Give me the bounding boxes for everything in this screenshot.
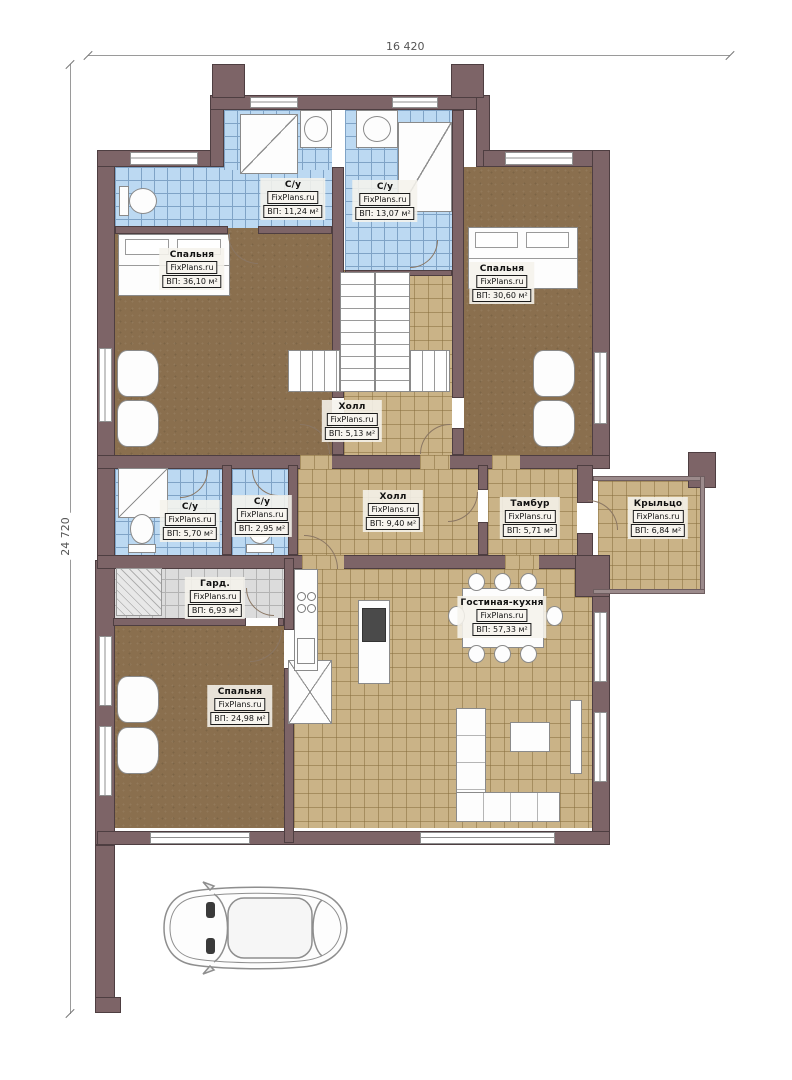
wall-segment	[478, 522, 488, 555]
room-label-porch: Крыльцо FixPlans.ru ВП: 6,84 м²	[628, 497, 688, 539]
window	[99, 348, 112, 422]
watermark: FixPlans.ru	[214, 698, 265, 711]
dining-chair-icon	[494, 645, 511, 663]
room-area: ВП: 36,10 м²	[162, 275, 221, 288]
wall-segment	[278, 618, 284, 626]
dimension-label-left: 24 720	[59, 513, 72, 560]
watermark: FixPlans.ru	[359, 193, 410, 206]
room-label-bath-mid-left: С/у FixPlans.ru ВП: 5,70 м²	[160, 500, 220, 542]
watermark: FixPlans.ru	[189, 590, 240, 603]
window	[250, 97, 298, 108]
toilet-tank	[119, 186, 129, 216]
dining-chair-icon	[520, 573, 537, 591]
cooktop-icon	[362, 608, 386, 642]
living-kitchen-floor	[294, 569, 592, 828]
shower-icon	[240, 114, 298, 174]
window	[420, 832, 555, 844]
sink-icon	[304, 116, 328, 142]
room-name: Крыльцо	[634, 499, 682, 509]
floor-plan: 16 420 24 720	[0, 0, 792, 1080]
door-opening	[492, 455, 520, 469]
room-name: Гард.	[200, 579, 230, 589]
dimension-label-top: 16 420	[382, 40, 429, 53]
chimney-block	[212, 64, 245, 98]
wall-segment	[95, 845, 115, 1013]
watermark: FixPlans.ru	[504, 510, 555, 523]
room-area: ВП: 6,84 м²	[631, 524, 685, 537]
dimension-line-top	[88, 55, 730, 56]
room-name: С/у	[254, 497, 270, 507]
porch-wall	[593, 476, 705, 481]
tv-unit-icon	[570, 700, 582, 774]
wall-segment	[97, 455, 610, 469]
room-label-bath-mid-right: С/у FixPlans.ru ВП: 2,95 м²	[232, 495, 292, 537]
wall-segment	[115, 226, 228, 234]
wall-segment	[113, 618, 246, 626]
room-area: ВП: 30,60 м²	[472, 289, 531, 302]
dining-chair-icon	[520, 645, 537, 663]
window	[392, 97, 438, 108]
watermark: FixPlans.ru	[476, 275, 527, 288]
room-name: С/у	[285, 180, 301, 190]
room-label-bath-top-center: С/у FixPlans.ru ВП: 13,07 м²	[352, 180, 417, 222]
chimney-block	[451, 64, 484, 98]
armchair-icon	[117, 676, 159, 723]
armchair-icon	[117, 350, 159, 397]
window	[99, 726, 112, 796]
room-area: ВП: 13,07 м²	[355, 207, 414, 220]
watermark: FixPlans.ru	[166, 261, 217, 274]
room-area: ВП: 5,13 м²	[325, 427, 379, 440]
room-area: ВП: 11,24 м²	[263, 205, 322, 218]
dining-chair-icon	[546, 606, 563, 626]
stairs	[410, 350, 450, 392]
room-name: Спальня	[218, 687, 263, 697]
room-area: ВП: 57,33 м²	[472, 623, 531, 636]
room-label-bedroom-bottom: Спальня FixPlans.ru ВП: 24,98 м²	[207, 685, 272, 727]
dining-chair-icon	[468, 645, 485, 663]
window	[130, 152, 198, 165]
room-name: Тамбур	[510, 499, 549, 509]
door-opening	[505, 555, 539, 569]
window	[594, 352, 607, 424]
armchair-icon	[117, 727, 159, 774]
room-area: ВП: 24,98 м²	[210, 712, 269, 725]
room-area: ВП: 9,40 м²	[366, 517, 420, 530]
room-name: С/у	[182, 502, 198, 512]
window	[99, 636, 112, 706]
watermark: FixPlans.ru	[476, 609, 527, 622]
wall-segment	[452, 428, 464, 455]
dining-chair-icon	[468, 573, 485, 591]
room-label-bedroom-tr: Спальня FixPlans.ru ВП: 30,60 м²	[469, 262, 534, 304]
room-name: Спальня	[170, 250, 215, 260]
coffee-table-icon	[510, 722, 550, 752]
room-label-bath-top-left: С/у FixPlans.ru ВП: 11,24 м²	[260, 178, 325, 220]
door-opening	[300, 455, 332, 469]
wall-segment	[284, 558, 294, 630]
room-label-hall-lower: Холл FixPlans.ru ВП: 9,40 м²	[363, 490, 423, 532]
armchair-icon	[533, 350, 575, 397]
room-label-bedroom-tl: Спальня FixPlans.ru ВП: 36,10 м²	[159, 248, 224, 290]
sofa-icon	[456, 792, 560, 822]
wall-segment	[95, 997, 121, 1013]
porch-wall	[700, 476, 705, 594]
window	[150, 832, 250, 844]
room-label-living-kitchen: Гостиная-кухня FixPlans.ru ВП: 57,33 м²	[457, 596, 546, 638]
wall-segment	[478, 465, 488, 490]
door-opening	[420, 455, 450, 469]
porch-wall	[593, 589, 705, 594]
kitchen-sink-icon	[297, 638, 315, 664]
sink-icon	[363, 116, 391, 142]
car-icon	[150, 878, 355, 978]
window	[594, 712, 607, 782]
room-area: ВП: 6,93 м²	[188, 604, 242, 617]
room-name: Гостиная-кухня	[460, 598, 543, 608]
shelving-icon	[116, 568, 162, 616]
toilet-icon	[130, 514, 154, 544]
room-label-wardrobe: Гард. FixPlans.ru ВП: 6,93 м²	[185, 577, 245, 619]
window	[594, 612, 607, 682]
room-area: ВП: 5,71 м²	[503, 524, 557, 537]
toilet-tank	[128, 544, 156, 553]
armchair-icon	[533, 400, 575, 447]
room-label-hall-upper: Холл FixPlans.ru ВП: 5,13 м²	[322, 400, 382, 442]
stairs	[288, 350, 340, 392]
toilet-icon	[129, 188, 157, 214]
stairs-divider	[374, 272, 376, 392]
wall-segment	[592, 558, 610, 845]
room-name: Холл	[379, 492, 406, 502]
wall-segment	[452, 110, 464, 398]
watermark: FixPlans.ru	[267, 191, 318, 204]
room-label-tambour: Тамбур FixPlans.ru ВП: 5,71 м²	[500, 497, 560, 539]
room-name: С/у	[377, 182, 393, 192]
wall-segment	[577, 465, 593, 503]
watermark: FixPlans.ru	[367, 503, 418, 516]
room-area: ВП: 2,95 м²	[235, 522, 289, 535]
window	[505, 152, 573, 165]
armchair-icon	[117, 400, 159, 447]
watermark: FixPlans.ru	[164, 513, 215, 526]
watermark: FixPlans.ru	[326, 413, 377, 426]
watermark: FixPlans.ru	[632, 510, 683, 523]
room-name: Спальня	[480, 264, 525, 274]
watermark: FixPlans.ru	[236, 508, 287, 521]
room-name: Холл	[338, 402, 365, 412]
toilet-tank	[246, 544, 274, 553]
room-area: ВП: 5,70 м²	[163, 527, 217, 540]
wall-segment	[222, 465, 232, 555]
wall-segment	[258, 226, 332, 234]
dining-chair-icon	[494, 573, 511, 591]
